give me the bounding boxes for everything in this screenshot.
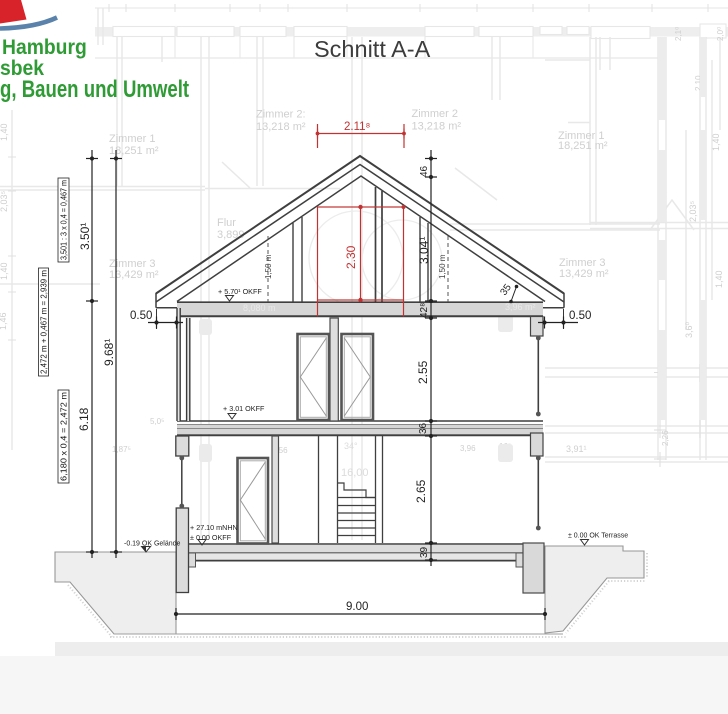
svg-text:2,03⁵: 2,03⁵ xyxy=(688,200,698,222)
svg-text:1,40: 1,40 xyxy=(714,270,724,288)
svg-text:3,501 : 3 x 0,4 = 0,467 m: 3,501 : 3 x 0,4 = 0,467 m xyxy=(60,180,69,260)
svg-text:0.50: 0.50 xyxy=(569,310,591,322)
svg-text:3.04¹: 3.04¹ xyxy=(417,237,431,264)
svg-text:46: 46 xyxy=(419,165,430,177)
svg-text:Flur: Flur xyxy=(217,217,236,229)
svg-text:13,429 m²: 13,429 m² xyxy=(559,268,609,280)
svg-text:6.18: 6.18 xyxy=(77,407,91,431)
svg-text:1,46: 1,46 xyxy=(0,312,8,330)
svg-text:13,218 m²: 13,218 m² xyxy=(412,121,462,133)
svg-text:-0.19 OK Gelände: -0.19 OK Gelände xyxy=(124,541,181,548)
svg-text:2,0⁰: 2,0⁰ xyxy=(716,27,725,41)
svg-text:2.65: 2.65 xyxy=(414,479,428,503)
svg-text:1,40: 1,40 xyxy=(711,133,721,151)
svg-text:+ 5.70¹ OKFF: + 5.70¹ OKFF xyxy=(218,287,262,296)
svg-text:1,50 m: 1,50 m xyxy=(264,254,273,279)
svg-text:9.68¹: 9.68¹ xyxy=(102,339,116,366)
svg-text:8,080 m: 8,080 m xyxy=(243,303,276,313)
svg-text:Zimmer 1: Zimmer 1 xyxy=(109,133,155,145)
svg-text:35: 35 xyxy=(498,282,514,298)
svg-text:Zimmer 2:: Zimmer 2: xyxy=(256,109,306,121)
svg-text:9.00: 9.00 xyxy=(346,601,368,613)
svg-text:Schnitt A-A: Schnitt A-A xyxy=(314,36,431,62)
svg-text:2.11⁸: 2.11⁸ xyxy=(344,121,371,133)
svg-text:2.30: 2.30 xyxy=(344,245,358,269)
svg-text:± 0.00 OK Terrasse: ± 0.00 OK Terrasse xyxy=(568,533,628,540)
svg-text:2,03⁵: 2,03⁵ xyxy=(0,190,9,212)
svg-text:Zimmer 2: Zimmer 2 xyxy=(412,108,458,120)
svg-text:+ 27.10 mNHN: + 27.10 mNHN xyxy=(190,523,238,532)
svg-text:6,180 x 0,4 = 2,472 m: 6,180 x 0,4 = 2,472 m xyxy=(60,392,69,481)
svg-text:3,96: 3,96 xyxy=(460,444,476,453)
svg-text:1,50 m: 1,50 m xyxy=(438,254,447,279)
svg-text:2.55: 2.55 xyxy=(416,360,430,384)
svg-text:16,00: 16,00 xyxy=(341,467,369,479)
svg-text:3,91¹: 3,91¹ xyxy=(566,444,587,454)
svg-text:3,96 m²: 3,96 m² xyxy=(505,302,536,312)
svg-text:34°: 34° xyxy=(344,441,358,451)
svg-text:1,40: 1,40 xyxy=(0,123,9,141)
svg-text:2,472 m + 0,467 m = 2,939 m: 2,472 m + 0,467 m = 2,939 m xyxy=(40,270,49,374)
svg-text:39: 39 xyxy=(419,546,430,558)
svg-text:0.50: 0.50 xyxy=(130,310,152,322)
svg-text:2,1⁰: 2,1⁰ xyxy=(674,27,683,41)
svg-text:3.50¹: 3.50¹ xyxy=(78,223,92,250)
svg-text:5,0⁵: 5,0⁵ xyxy=(150,417,164,426)
svg-text:3,6⁰: 3,6⁰ xyxy=(684,321,694,338)
svg-text:1,40: 1,40 xyxy=(0,262,9,280)
svg-text:1,87⁵: 1,87⁵ xyxy=(112,445,131,454)
svg-text:3,899: 3,899 xyxy=(217,229,245,241)
svg-text:42⁸: 42⁸ xyxy=(419,303,430,318)
svg-text:+ 3.01 OKFF: + 3.01 OKFF xyxy=(223,404,265,413)
svg-text:13,218 m²: 13,218 m² xyxy=(256,121,306,133)
svg-text:18,251 m²: 18,251 m² xyxy=(558,140,608,152)
svg-text:± 0.00 OKFF: ± 0.00 OKFF xyxy=(190,533,232,542)
svg-text:36: 36 xyxy=(418,422,429,434)
svg-text:2,26: 2,26 xyxy=(661,430,670,446)
